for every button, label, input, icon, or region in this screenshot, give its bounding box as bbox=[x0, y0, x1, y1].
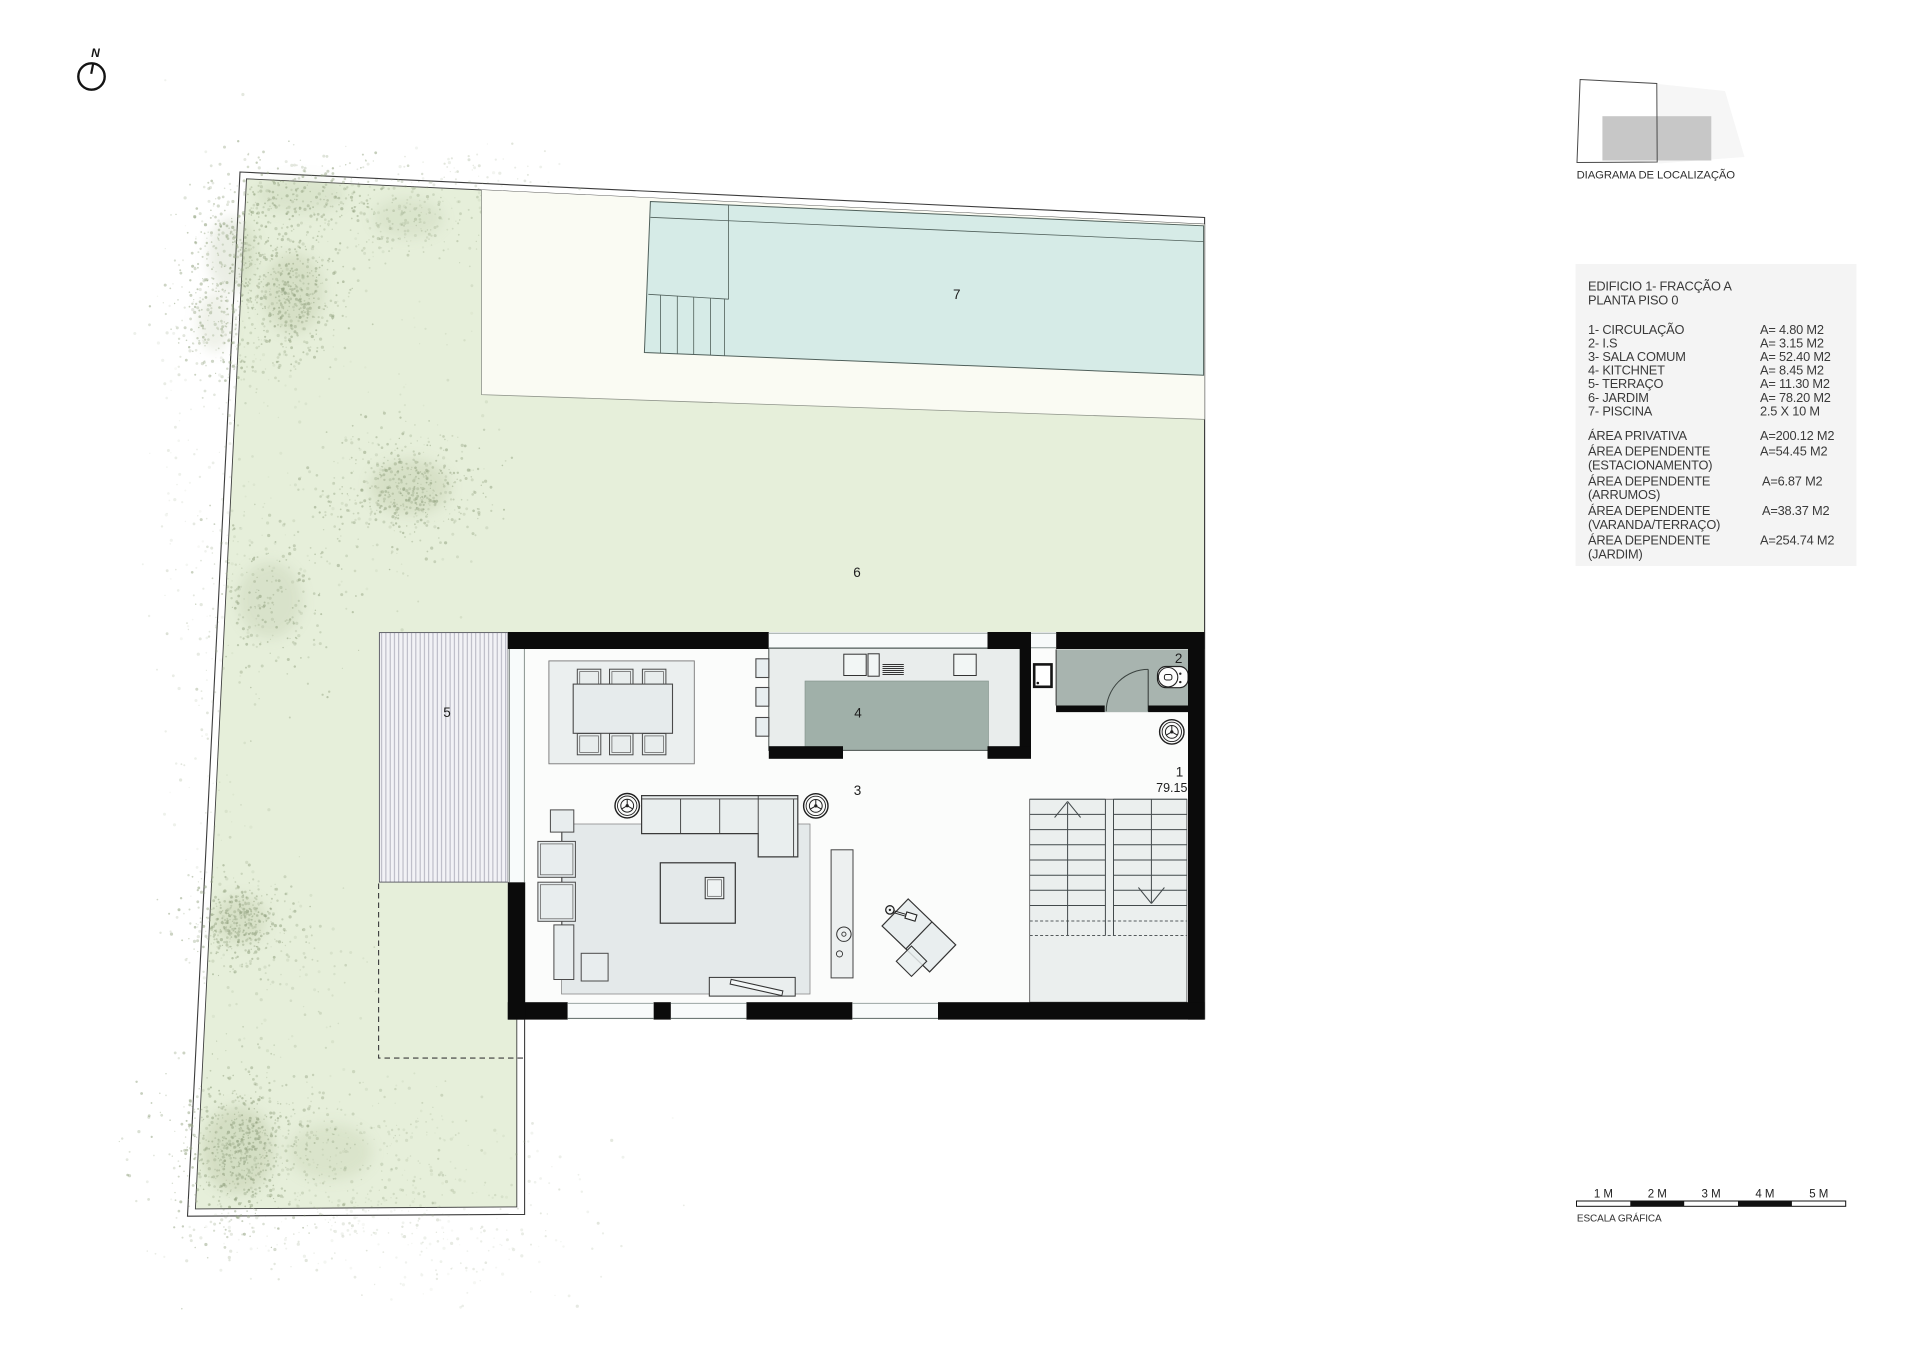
svg-text:6: 6 bbox=[853, 565, 861, 580]
svg-text:ÁREA DEPENDENTE: ÁREA DEPENDENTE bbox=[1588, 533, 1710, 548]
svg-text:PLANTA PISO 0: PLANTA PISO 0 bbox=[1588, 293, 1678, 308]
svg-text:(ESTACIONAMENTO): (ESTACIONAMENTO) bbox=[1588, 457, 1712, 472]
svg-text:2.5 X 10 M: 2.5 X 10 M bbox=[1760, 403, 1820, 418]
svg-text:5 M: 5 M bbox=[1809, 1189, 1828, 1201]
svg-text:3 M: 3 M bbox=[1702, 1189, 1721, 1201]
svg-text:ESCALA GRÁFICA: ESCALA GRÁFICA bbox=[1577, 1212, 1662, 1225]
svg-text:EDIFICIO 1- FRACÇÃO A: EDIFICIO 1- FRACÇÃO A bbox=[1588, 279, 1732, 294]
svg-text:5: 5 bbox=[443, 705, 451, 720]
svg-text:2: 2 bbox=[1175, 651, 1183, 666]
svg-text:A=38.37 M2: A=38.37 M2 bbox=[1762, 503, 1829, 518]
svg-text:A=6.87 M2: A=6.87 M2 bbox=[1762, 473, 1823, 488]
svg-text:(ARRUMOS): (ARRUMOS) bbox=[1588, 487, 1660, 502]
svg-text:1 M: 1 M bbox=[1594, 1189, 1613, 1201]
svg-text:DIAGRAMA DE LOCALIZAÇÃO: DIAGRAMA DE LOCALIZAÇÃO bbox=[1577, 169, 1736, 182]
svg-text:ÁREA DEPENDENTE: ÁREA DEPENDENTE bbox=[1588, 443, 1710, 458]
svg-text:A=54.45 M2: A=54.45 M2 bbox=[1760, 443, 1827, 458]
svg-text:2 M: 2 M bbox=[1648, 1189, 1667, 1201]
svg-text:(VARANDA/TERRAÇO): (VARANDA/TERRAÇO) bbox=[1588, 517, 1720, 532]
svg-text:4 M: 4 M bbox=[1755, 1189, 1774, 1201]
svg-text:A=254.74 M2: A=254.74 M2 bbox=[1760, 533, 1834, 548]
svg-text:N: N bbox=[91, 46, 100, 60]
svg-text:(JARDIM): (JARDIM) bbox=[1588, 547, 1643, 562]
svg-text:3: 3 bbox=[854, 783, 862, 798]
svg-text:7- PISCINA: 7- PISCINA bbox=[1588, 403, 1653, 418]
svg-text:ÁREA PRIVATIVA: ÁREA PRIVATIVA bbox=[1588, 428, 1688, 443]
svg-text:7: 7 bbox=[953, 287, 961, 302]
svg-text:A=200.12 M2: A=200.12 M2 bbox=[1760, 428, 1834, 443]
svg-text:ÁREA DEPENDENTE: ÁREA DEPENDENTE bbox=[1588, 503, 1710, 518]
svg-text:4: 4 bbox=[854, 706, 862, 721]
svg-text:1: 1 bbox=[1176, 765, 1184, 780]
svg-text:79.15: 79.15 bbox=[1156, 781, 1187, 795]
